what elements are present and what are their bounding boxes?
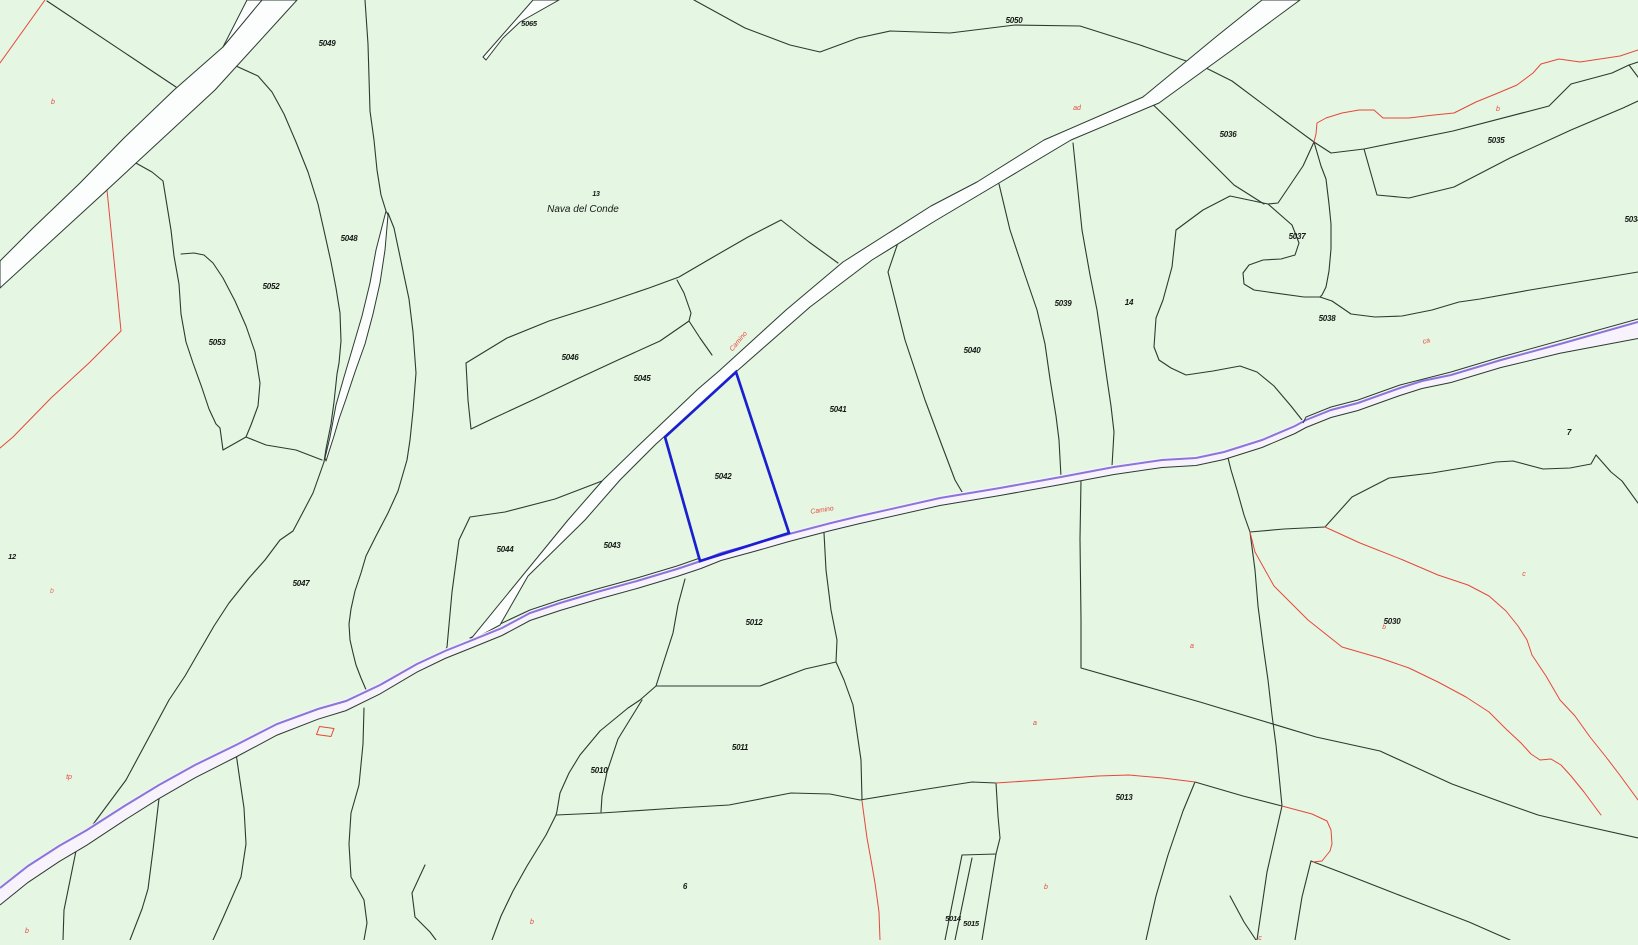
svg-text:a: a [1190,643,1194,650]
svg-text:5030: 5030 [1384,617,1402,626]
svg-text:5037: 5037 [1289,232,1307,241]
svg-text:b: b [50,588,54,595]
svg-text:b: b [25,928,29,935]
svg-text:5049: 5049 [319,39,337,48]
svg-text:b: b [1382,624,1386,631]
svg-text:5010: 5010 [591,766,609,775]
svg-text:5040: 5040 [964,346,982,355]
svg-text:5012: 5012 [746,618,764,627]
svg-text:5045: 5045 [634,374,652,383]
svg-text:5048: 5048 [341,234,359,243]
svg-text:b: b [530,919,534,926]
svg-text:5014: 5014 [945,914,962,923]
svg-text:13: 13 [592,191,600,198]
svg-text:5044: 5044 [497,545,515,554]
svg-text:5042: 5042 [715,472,733,481]
svg-text:5053: 5053 [209,338,227,347]
svg-text:5035: 5035 [1488,136,1506,145]
svg-text:5050: 5050 [1006,16,1024,25]
svg-text:5011: 5011 [732,743,749,752]
svg-text:5013: 5013 [1116,793,1134,802]
svg-text:5046: 5046 [562,353,580,362]
svg-text:b: b [1496,106,1500,113]
svg-text:b: b [51,99,55,106]
svg-text:5043: 5043 [604,541,622,550]
svg-text:5034: 5034 [1625,215,1638,224]
svg-text:5052: 5052 [263,282,281,291]
svg-text:5065: 5065 [521,19,538,28]
svg-text:ad: ad [1073,105,1082,112]
svg-text:a: a [1033,720,1037,727]
svg-text:5038: 5038 [1319,314,1337,323]
svg-text:5041: 5041 [830,405,848,414]
svg-text:Nava del Conde: Nava del Conde [547,204,619,215]
svg-text:5015: 5015 [963,919,980,928]
svg-text:14: 14 [1125,298,1134,307]
svg-text:c: c [1258,935,1262,940]
svg-text:5047: 5047 [293,579,311,588]
svg-text:b: b [1044,884,1048,891]
svg-text:5039: 5039 [1055,299,1073,308]
svg-text:c: c [1522,571,1526,578]
svg-text:5036: 5036 [1220,130,1238,139]
svg-text:tp: tp [66,774,72,781]
svg-text:12: 12 [8,552,17,561]
